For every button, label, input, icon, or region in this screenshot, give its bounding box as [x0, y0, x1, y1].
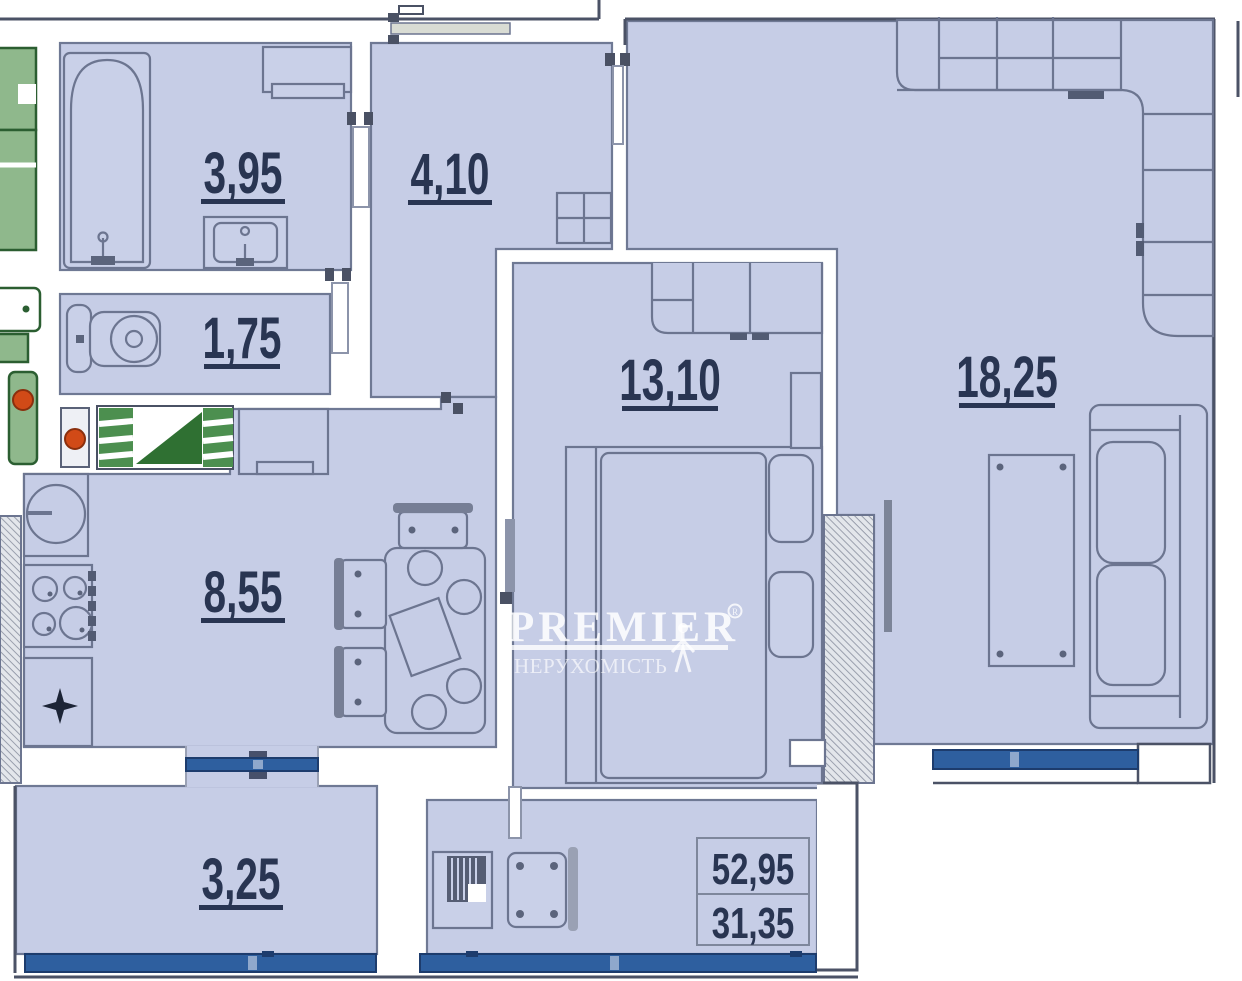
svg-text:НЕРУХОМІСТЬ: НЕРУХОМІСТЬ: [514, 654, 667, 678]
svg-text:3,95: 3,95: [204, 141, 283, 206]
svg-text:3,25: 3,25: [202, 847, 281, 912]
svg-text:31,35: 31,35: [712, 900, 795, 949]
svg-text:18,25: 18,25: [956, 345, 1058, 410]
svg-text:4,10: 4,10: [411, 142, 490, 207]
svg-text:R: R: [732, 607, 738, 617]
svg-text:52,95: 52,95: [712, 846, 795, 895]
svg-text:1,75: 1,75: [203, 306, 282, 371]
svg-text:13,10: 13,10: [619, 348, 721, 413]
svg-text:PREMIER: PREMIER: [508, 604, 739, 651]
svg-text:8,55: 8,55: [204, 560, 283, 625]
